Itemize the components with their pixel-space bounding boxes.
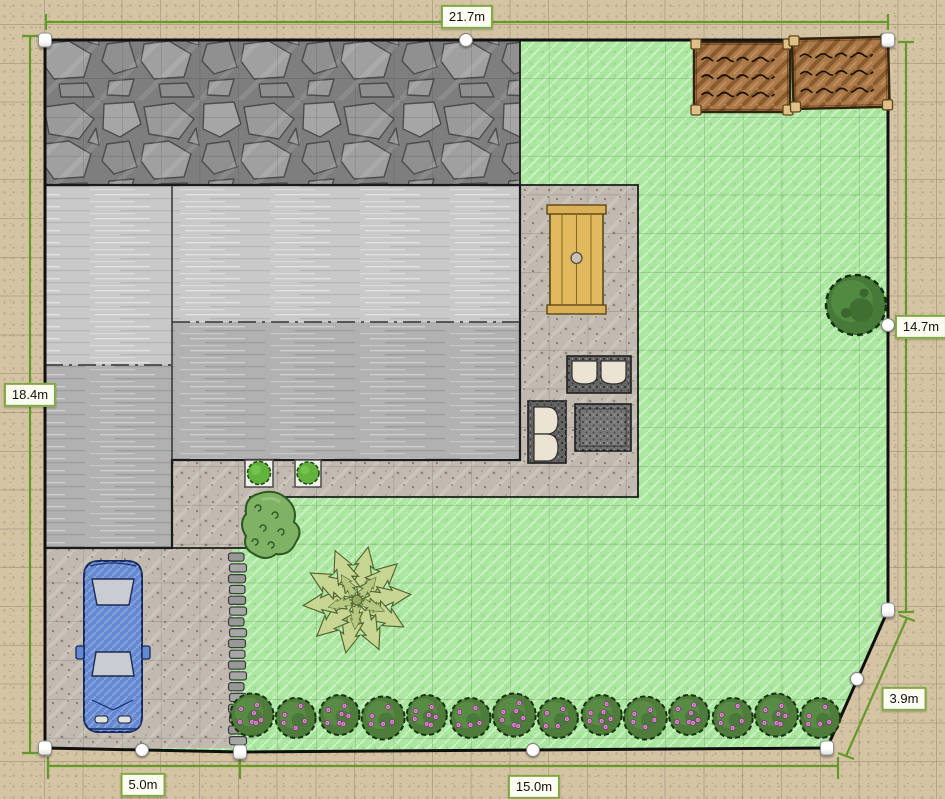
plot-corner-handle[interactable] <box>881 33 895 48</box>
stepping-stone <box>229 618 245 626</box>
wooden-table[interactable] <box>547 205 606 314</box>
plot-corner-handle[interactable] <box>38 33 52 48</box>
plot-corner-handle[interactable] <box>881 603 895 618</box>
hedge-shrub[interactable] <box>362 697 405 740</box>
plot-edge-midpoint-handle[interactable] <box>459 33 473 47</box>
hedge-shrub[interactable] <box>582 695 622 735</box>
raised-garden-bed[interactable] <box>691 39 793 115</box>
sofa-horizontal[interactable] <box>567 356 631 393</box>
car[interactable] <box>76 561 150 732</box>
parasol-hole <box>571 253 582 264</box>
stepping-stone <box>229 553 245 561</box>
stepping-stone <box>230 585 246 593</box>
dimension-label-left: 18.4m <box>4 383 56 407</box>
side-mirror <box>76 646 84 659</box>
headlight <box>95 716 108 723</box>
bed-corner-post <box>691 39 701 49</box>
dimension-label-top: 21.7m <box>441 5 493 29</box>
headlight <box>118 716 131 723</box>
side-mirror <box>142 646 150 659</box>
plot-edge-midpoint-handle[interactable] <box>881 318 895 332</box>
raised-garden-bed[interactable] <box>789 34 893 112</box>
plot-edge-midpoint-handle[interactable] <box>135 743 149 757</box>
garden-plan <box>0 0 945 799</box>
hedge-shrub[interactable] <box>800 698 840 738</box>
hedge-shrub[interactable] <box>276 698 316 738</box>
plot-edge-midpoint-handle[interactable] <box>850 672 864 686</box>
stepping-stone <box>229 575 246 583</box>
bed-corner-post <box>691 105 701 115</box>
stepping-stone <box>230 672 247 680</box>
potted-plant[interactable] <box>295 460 321 487</box>
bed-corner-post <box>789 36 799 46</box>
potted-plant[interactable] <box>245 460 273 487</box>
stepping-stone <box>229 639 246 647</box>
hedge-shrub[interactable] <box>319 695 359 735</box>
dimension-line-bottom <box>48 757 838 779</box>
hedge-shrub[interactable] <box>669 695 709 735</box>
bed-corner-post <box>882 100 892 110</box>
dimension-label-right: 14.7m <box>895 315 945 339</box>
plot-corner-handle[interactable] <box>233 745 247 760</box>
stepping-stone <box>229 683 245 691</box>
stepping-stone <box>229 661 246 669</box>
windshield <box>92 579 134 605</box>
plot-corner-handle[interactable] <box>38 741 52 756</box>
stepping-stone <box>230 650 246 658</box>
hedge-shrub[interactable] <box>713 698 753 738</box>
stepping-stone <box>230 564 247 572</box>
stepping-stone <box>229 596 246 604</box>
dimension-label-diagonal: 3.9m <box>882 687 927 711</box>
coffee-table[interactable] <box>575 404 631 451</box>
sofa-vertical[interactable] <box>528 401 566 463</box>
garden-planner-canvas: 21.7m 18.4m 14.7m 3.9m 5.0m 15.0m <box>0 0 945 799</box>
hedge-shrub[interactable] <box>231 694 274 737</box>
corner-bush[interactable] <box>242 492 300 558</box>
tree[interactable] <box>826 275 886 335</box>
bed-corner-post <box>790 102 800 112</box>
hedge-shrub[interactable] <box>407 695 447 735</box>
hedge-shrub[interactable] <box>493 694 536 737</box>
rear-window <box>92 652 134 676</box>
stepping-stone <box>230 607 247 615</box>
plot-corner-handle[interactable] <box>820 741 834 756</box>
hedge-shrub[interactable] <box>538 698 578 738</box>
dimension-label-bottom-left: 5.0m <box>121 773 166 797</box>
hedge-shrub[interactable] <box>451 698 491 738</box>
plot-edge-midpoint-handle[interactable] <box>526 743 540 757</box>
hedge-shrub[interactable] <box>624 697 667 740</box>
garden-beds <box>691 34 893 115</box>
stepping-stone <box>230 629 247 637</box>
hedge-shrub[interactable] <box>755 694 798 737</box>
dimension-label-bottom-center: 15.0m <box>508 775 560 799</box>
